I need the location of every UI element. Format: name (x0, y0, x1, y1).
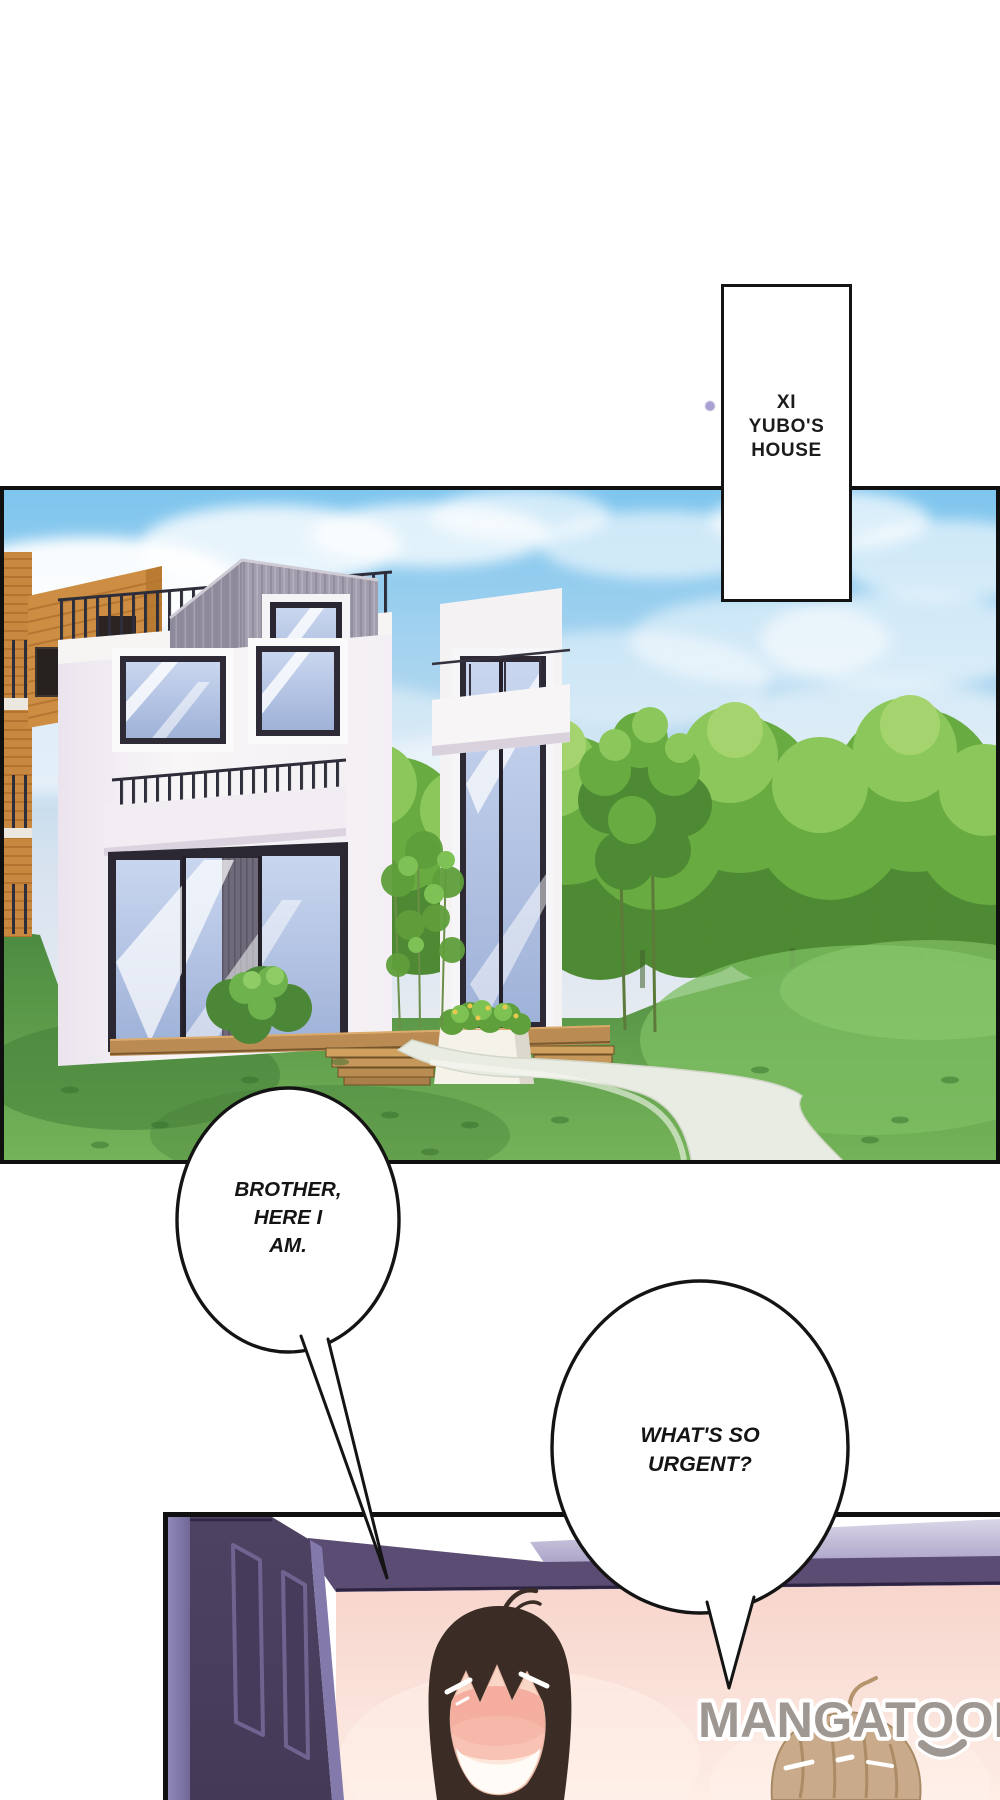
right-wing (432, 588, 570, 1040)
room-interior-panel: MANGATOON (163, 1512, 1000, 1800)
mangatoon-watermark: MANGATOON (698, 1692, 1000, 1753)
watermark-text: MANGATOON (698, 1692, 1000, 1748)
bubble-line: AM. (188, 1232, 388, 1260)
caption-line: HOUSE (724, 439, 849, 463)
bubble-urgent-text: WHAT'S SO URGENT? (555, 1421, 845, 1479)
location-caption-box: XI YUBO'S HOUSE (721, 284, 852, 602)
caption-line: XI (724, 391, 849, 415)
upper-window-right (248, 638, 348, 744)
open-door (168, 1517, 344, 1800)
bubble-line: URGENT? (555, 1450, 845, 1479)
caption-line: YUBO'S (724, 415, 849, 439)
orange-wood-tower (4, 552, 32, 937)
bubble-line: WHAT'S SO (555, 1421, 845, 1450)
room-scene: MANGATOON (168, 1517, 1000, 1800)
comic-page: MANGATOON XI YUBO'S HOUSE BROTHER, HERE … (0, 0, 1000, 1800)
bubble-brother-text: BROTHER, HERE I AM. (188, 1176, 388, 1260)
decorative-dot (705, 401, 715, 411)
bubble-line: HERE I (188, 1204, 388, 1232)
upper-window-left (112, 648, 234, 752)
bubble-line: BROTHER, (188, 1176, 388, 1204)
